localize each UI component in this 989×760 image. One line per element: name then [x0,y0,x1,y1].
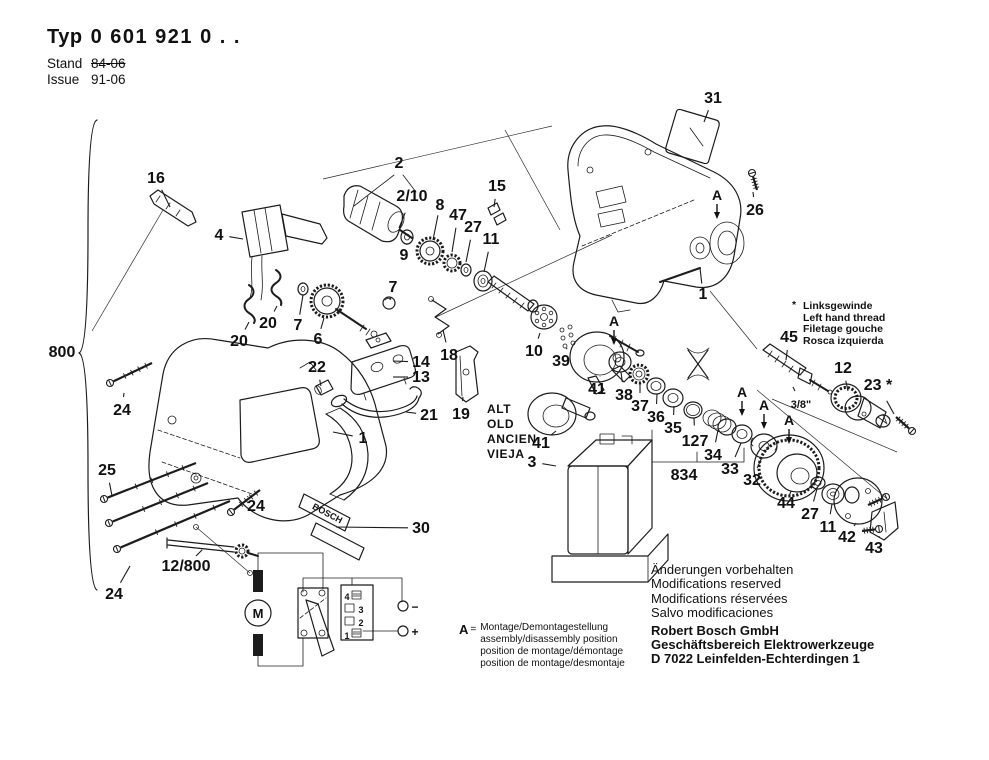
issue-value: 91-06 [91,72,126,87]
leader-line [735,443,741,457]
part-label: 27 [464,219,482,236]
screw-drawing [107,363,153,387]
leader-line [109,483,112,496]
leader-line [162,190,170,207]
leader-line [333,432,353,436]
circuit-label: + [411,625,418,639]
note-line: Montage/Demontagestellung [480,622,625,634]
part-label: 11 [483,231,500,248]
part-label: 6 [314,331,323,348]
brace-800 [79,120,97,590]
note-line: Rosca izquierda [803,336,885,348]
leader-line [484,252,488,272]
part-label: 30 [412,520,430,537]
leader-line [300,295,303,315]
part-label: 7 [389,279,398,296]
assembly-marker-arrowhead [611,338,617,345]
battery-pack-3-drawing [552,434,668,582]
part-label: 12 [834,360,852,377]
leader-line [566,348,567,349]
typ-label: Typ [47,26,83,48]
leader-line [887,401,894,414]
leader-line [320,380,321,386]
part-label: 24 [247,498,265,515]
part-labels-layer: 164202080022/108472711159767141318191039… [49,90,894,641]
leader-line [538,333,540,339]
part-label: 1 [359,430,368,447]
part-label: 34 [704,447,722,464]
assembly-marker-arrowhead [714,212,720,219]
leader-line [196,550,202,556]
circuit-label: M [253,606,264,621]
part-label: 25 [98,462,116,479]
leader-line [229,237,243,239]
leader-line [406,412,416,413]
equals-sign: = [470,624,476,635]
part-label: 36 [647,409,665,426]
part-label: 834 [671,467,698,484]
note-line: position de montage/démontage [480,646,625,658]
circuit-label: 3 [358,605,363,615]
part-label: 800 [49,344,76,361]
leader-line [247,496,248,497]
screw-drawing [749,170,760,191]
switch-4-drawing [242,205,327,300]
screw-drawing [868,494,890,507]
old-version-note: ALTOLDANCIENVIEJA [487,402,537,462]
part-label: 18 [440,347,458,364]
revision-block: Stand84-06 Issue91-06 [47,56,241,88]
screw-drawing [862,526,883,534]
modifications-note: Änderungen vorbehaltenModifications rese… [651,563,874,621]
part-label: 10 [525,343,543,360]
leader-line [433,215,438,240]
lever-14-plate-13-drawing [351,333,415,400]
typ-number: 0 601 921 0 . . [91,26,241,48]
left-hand-thread-note: * LinksgewindeLeft hand threadFiletage g… [803,301,885,347]
balls-39-drawing [560,325,575,348]
circuit-diagram [245,553,408,666]
upper-gear-set-drawing [401,230,492,291]
leader-line [466,240,470,262]
note-line: Linksgewinde [803,301,885,313]
label-bracket-lines [354,175,744,462]
assembly-marker: A [609,313,619,329]
part-label: 2/10 [396,188,427,205]
assembly-marker-arrowhead [761,422,767,429]
circuit-label: 1 [344,631,349,641]
footer-block: Änderungen vorbehaltenModifications rese… [651,563,874,667]
leader-line [830,504,832,514]
part-label: 12/800 [162,558,211,575]
note-line: ALT [487,402,537,417]
part-label: 9 [400,247,409,264]
note-line: Salvo modificaciones [651,606,874,620]
clip-15-drawing [488,203,506,225]
note-line: ANCIEN [487,432,537,447]
leader-line [452,228,456,252]
leader-line [120,566,130,583]
note-line: D 7022 Leinfelden-Echterdingen 1 [651,652,874,666]
leader-line [846,381,848,391]
part-label: 19 [452,406,470,423]
part-label: 11 [820,519,837,536]
leader-line [393,361,408,362]
part-label: 7 [294,317,303,334]
gear-6-drawing [298,283,377,337]
leader-line [753,192,754,197]
thread-note-lines: LinksgewindeLeft hand threadFiletage gou… [803,301,885,347]
part-label: 1 [699,286,708,303]
roller-22-drawing [313,380,333,395]
assembly-marker: A [737,384,747,400]
part-label: 24 [105,586,123,603]
note-line: Geschäftsbereich Elektrowerkzeuge [651,638,874,652]
clutch-41-drawing [570,332,644,394]
note-line: VIEJA [487,447,537,462]
no-part-x-symbol [687,348,709,380]
part-label: 16 [147,170,165,187]
leader-line [793,387,795,391]
note-line: assembly/disassembly position [480,634,625,646]
part-label: 15 [488,178,506,195]
part-label: 23 * [864,377,893,394]
part-label: 31 [704,90,722,107]
part-label: 22 [308,359,326,376]
part-label: 20 [230,333,248,350]
part-label: 41 [588,381,606,398]
part-label: 8 [436,197,445,214]
note-line: OLD [487,417,537,432]
label-plate-31 [666,109,719,163]
assembly-marker: A [784,412,794,428]
part-label: 21 [420,407,438,424]
type-number-line: Typ0 601 921 0 . . [47,26,241,49]
part-label: 45 [780,329,798,346]
screw-drawing [896,417,916,435]
leader-line [700,268,702,284]
leader-line [245,322,249,329]
assembly-marker-arrowhead [739,409,745,416]
assembly-marker-arrowhead [786,437,792,444]
leader-line [494,199,495,207]
housing-right-drawing [568,126,744,312]
assembly-note-lines: Montage/Demontagestellungassembly/disass… [480,622,625,670]
part-label: 33 [721,461,739,478]
spindle-45-drawing [763,344,832,394]
stand-value: 84-06 [91,56,126,71]
part-label: 42 [838,529,856,546]
spring-18-drawing [429,297,450,338]
leader-line [786,350,787,360]
part-label: 44 [777,495,795,512]
ring-gear-44-drawing [754,435,824,501]
part-label: 43 [865,540,883,557]
leader-line [621,372,622,382]
stand-label: Stand [47,56,91,72]
leader-line [542,464,556,466]
washer-bearing-drawing [811,477,844,504]
part-label: 39 [552,353,570,370]
issue-row: Issue91-06 [47,72,241,88]
assembly-marker: A [759,397,769,413]
circuit-label: − [411,600,418,614]
circuit-label: 2 [358,618,363,628]
part-label: 13 [412,369,430,386]
part-label: 3/8" [791,399,812,411]
spindle-10-drawing [488,276,557,329]
note-line: position de montage/desmontaje [480,658,625,670]
company-address: Robert Bosch GmbHGeschäftsbereich Elektr… [651,624,874,667]
leader-line [443,330,446,342]
leader-line [716,430,718,442]
issue-label: Issue [47,72,91,88]
circuit-label: 4 [344,592,349,602]
ball-7-drawing [383,297,395,309]
part-label: 26 [746,202,764,219]
assembly-position-note: A = Montage/Demontagestellungassembly/di… [459,622,625,670]
note-line: Modifications réservées [651,592,874,606]
leader-line [390,297,391,300]
leader-line [274,306,277,312]
exploded-parts-diagram-page: 164202080022/108472711159767141318191039… [0,0,989,760]
leader-line [321,318,324,329]
part-label: 20 [259,315,277,332]
asterisk-symbol: * [792,300,796,312]
note-line: Änderungen vorbehalten [651,563,874,577]
assembly-marker: A [712,187,722,203]
bracket-19-drawing [456,346,478,402]
part-label: 2 [395,155,404,172]
clutch-41-old-drawing [528,393,595,435]
note-line: Robert Bosch GmbH [651,624,874,638]
part-label: 35 [664,420,682,437]
a-symbol: A [459,622,468,637]
part-label: 24 [113,402,131,419]
part-label: 32 [743,472,761,489]
title-block: Typ0 601 921 0 . . Stand84-06 Issue91-06 [47,26,241,88]
note-line: Modifications reserved [651,577,874,591]
part-label: 4 [215,227,224,244]
stand-row: Stand84-06 [47,56,241,72]
part-label: 27 [801,506,819,523]
